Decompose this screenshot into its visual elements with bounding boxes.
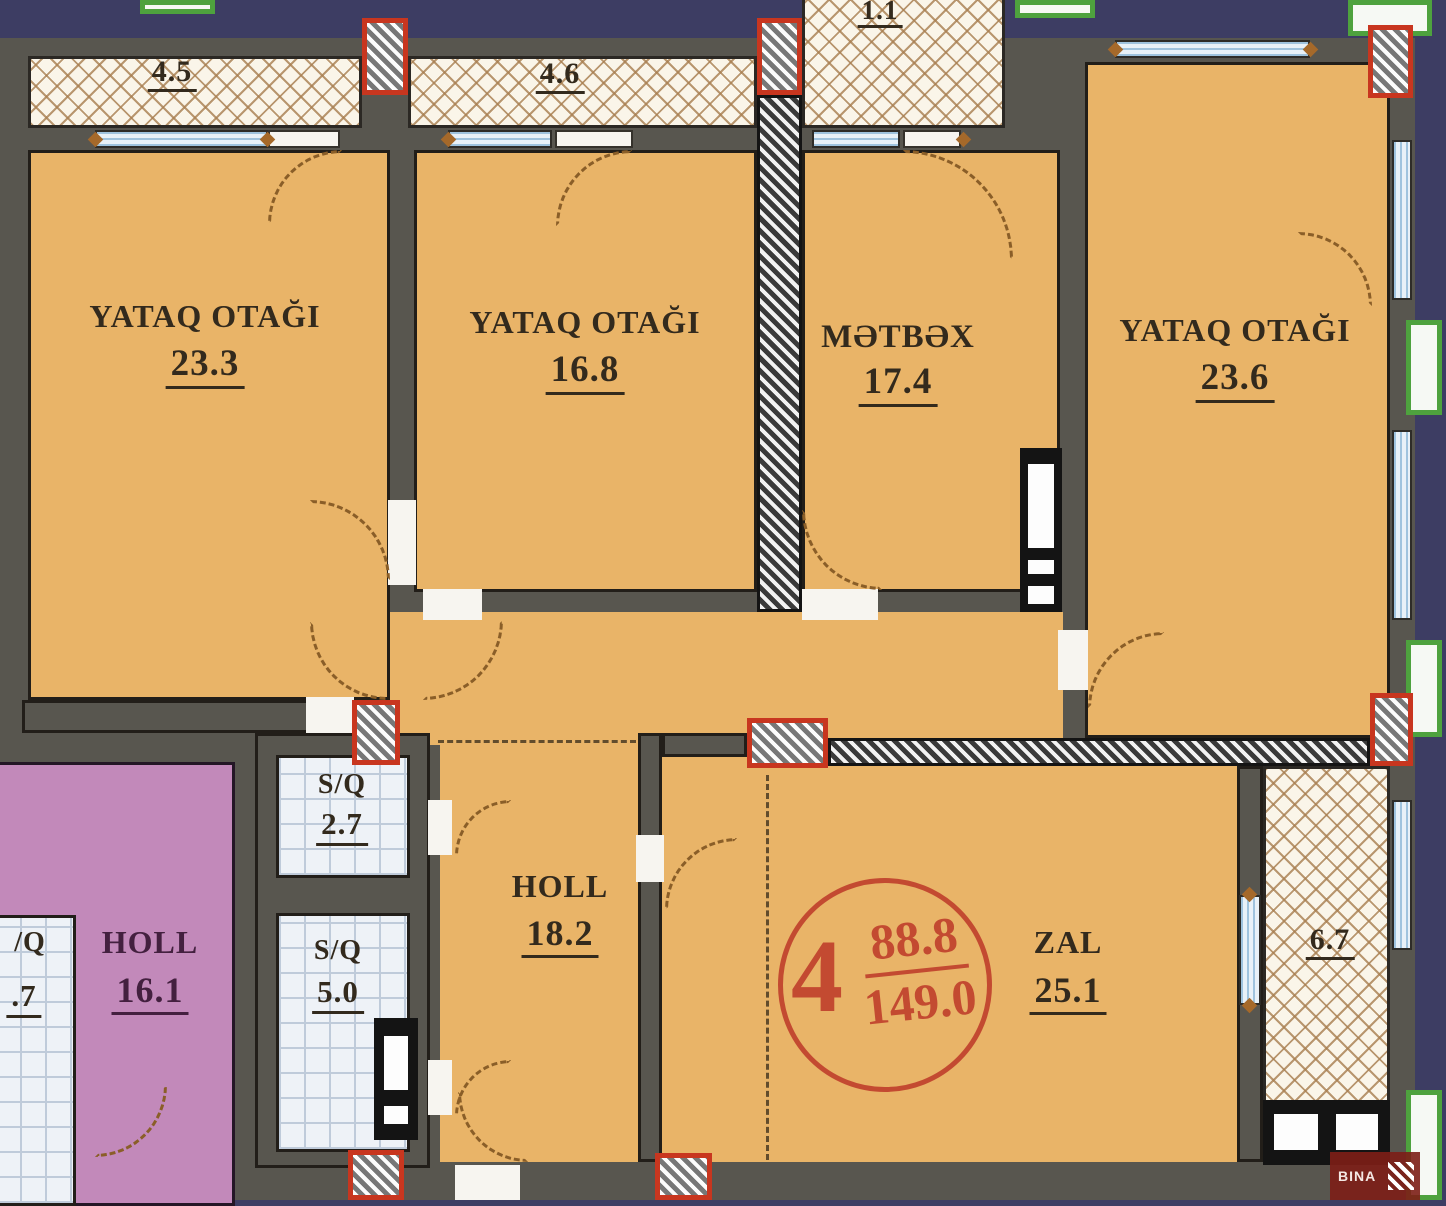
green-window-top-small-2	[1015, 0, 1095, 18]
zal-area: 25.1	[1030, 972, 1107, 1015]
neighbor-hall-area: 16.1	[112, 972, 189, 1015]
floor-plan-canvas: { "rooms": [ {"label": "YATAQ OTAĞI", "a…	[0, 0, 1446, 1200]
hall-open-boundary	[438, 740, 636, 743]
balcony-rail-window-1	[1272, 1112, 1320, 1152]
bedroom3-door-gap	[1058, 630, 1088, 690]
watermark-badge: BINA	[1330, 1152, 1420, 1200]
bedroom-1-area: 23.3	[166, 345, 245, 389]
bedroom-1	[28, 150, 390, 700]
entrance-door-gap	[455, 1165, 520, 1200]
neighbor-sq-floor	[0, 915, 76, 1206]
area-numerator: 88.8	[859, 904, 969, 978]
kitchen-duct-slot-1	[1026, 462, 1056, 550]
bedroom1-window	[95, 130, 268, 148]
kitchen-name: MƏTBƏX	[821, 320, 975, 355]
kitchen-area: 17.4	[859, 363, 938, 407]
red-column-3	[1368, 25, 1413, 98]
right-wall-window-3	[1392, 800, 1412, 950]
unit-number: 4	[791, 917, 843, 1036]
sq-duct-slot-1	[382, 1034, 410, 1092]
zal-name: ZAL	[1034, 926, 1103, 960]
bedroom1-door-gap	[306, 697, 354, 736]
bedroom2-balcony-door	[555, 130, 633, 148]
zal-open-boundary	[766, 775, 769, 1160]
bedroom-2-area: 16.8	[546, 351, 625, 395]
bedroom-1-name: YATAQ OTAĞI	[89, 300, 320, 334]
sq1-door-gap	[428, 800, 452, 855]
bedroom2-door-gap	[423, 589, 482, 620]
red-column-2	[757, 18, 802, 95]
bedroom1-balcony-door	[268, 130, 340, 148]
bedroom-3-area: 23.6	[1196, 359, 1275, 403]
stub-wall	[662, 733, 747, 757]
balcony-rail-window-2	[1334, 1112, 1380, 1152]
area-fraction: 88.8 149.0	[841, 902, 993, 1038]
sq-2-area: 5.0	[312, 976, 364, 1014]
vent-wall-kitchen-divider	[757, 95, 802, 612]
kitchen-duct-slot-2	[1026, 558, 1056, 576]
sq-duct-slot-2	[382, 1104, 410, 1126]
kitchen-door-gap	[802, 589, 878, 620]
balcony-top-mid-area: 4.6	[536, 58, 585, 94]
balcony-kitchen-area: 1.1	[858, 0, 903, 28]
kitchen-duct-slot-3	[1026, 584, 1056, 606]
bedroom1-bottom-wall	[22, 700, 310, 733]
bedroom-2-name: YATAQ OTAĞI	[469, 306, 700, 340]
red-column-1	[362, 18, 408, 95]
sq2-door-gap	[428, 1060, 452, 1115]
bedroom1-divider-door-gap	[388, 500, 416, 585]
bedroom-3-name: YATAQ OTAĞI	[1119, 314, 1350, 348]
neighbor-sq-area: .7	[6, 980, 41, 1018]
watermark-text: BINA	[1338, 1168, 1376, 1184]
balcony-right-area: 6.7	[1306, 924, 1355, 960]
hall-area: 18.2	[522, 915, 599, 958]
red-column-5	[747, 718, 828, 768]
sq-1-name: S/Q	[318, 770, 366, 799]
red-column-8	[348, 1150, 404, 1200]
sq-2-name: S/Q	[314, 936, 362, 965]
hall-zal-door-gap	[636, 835, 664, 882]
red-column-6	[1370, 693, 1413, 766]
bedroom3-window	[1115, 40, 1310, 58]
balcony-kitchen	[802, 0, 1005, 128]
neighbor-sq-name: /Q	[14, 928, 46, 957]
area-denominator: 149.0	[861, 968, 979, 1035]
green-window-top-small-1	[140, 0, 215, 14]
hatched-wall-horizontal	[828, 738, 1370, 766]
corridor-floor	[306, 612, 1063, 745]
hall-name: HOLL	[512, 870, 608, 904]
unit-stamp-circle: 4 88.8 149.0	[778, 878, 992, 1092]
right-wall-window-1	[1392, 140, 1412, 300]
kitchen-balcony-door	[903, 130, 961, 148]
bedroom2-window	[448, 130, 552, 148]
sq-1-area: 2.7	[316, 808, 368, 846]
green-window-right-1	[1406, 320, 1442, 415]
right-wall-window-2	[1392, 430, 1412, 620]
red-column-4	[352, 700, 400, 765]
balcony-top-left-area: 4.5	[148, 56, 197, 92]
red-column-7	[655, 1153, 712, 1200]
watermark-hatch-icon	[1388, 1162, 1414, 1190]
zal-balcony-window	[1239, 895, 1261, 1005]
hall-right-wall	[638, 733, 662, 1162]
kitchen-window	[812, 130, 900, 148]
neighbor-hall-name: HOLL	[102, 926, 198, 960]
